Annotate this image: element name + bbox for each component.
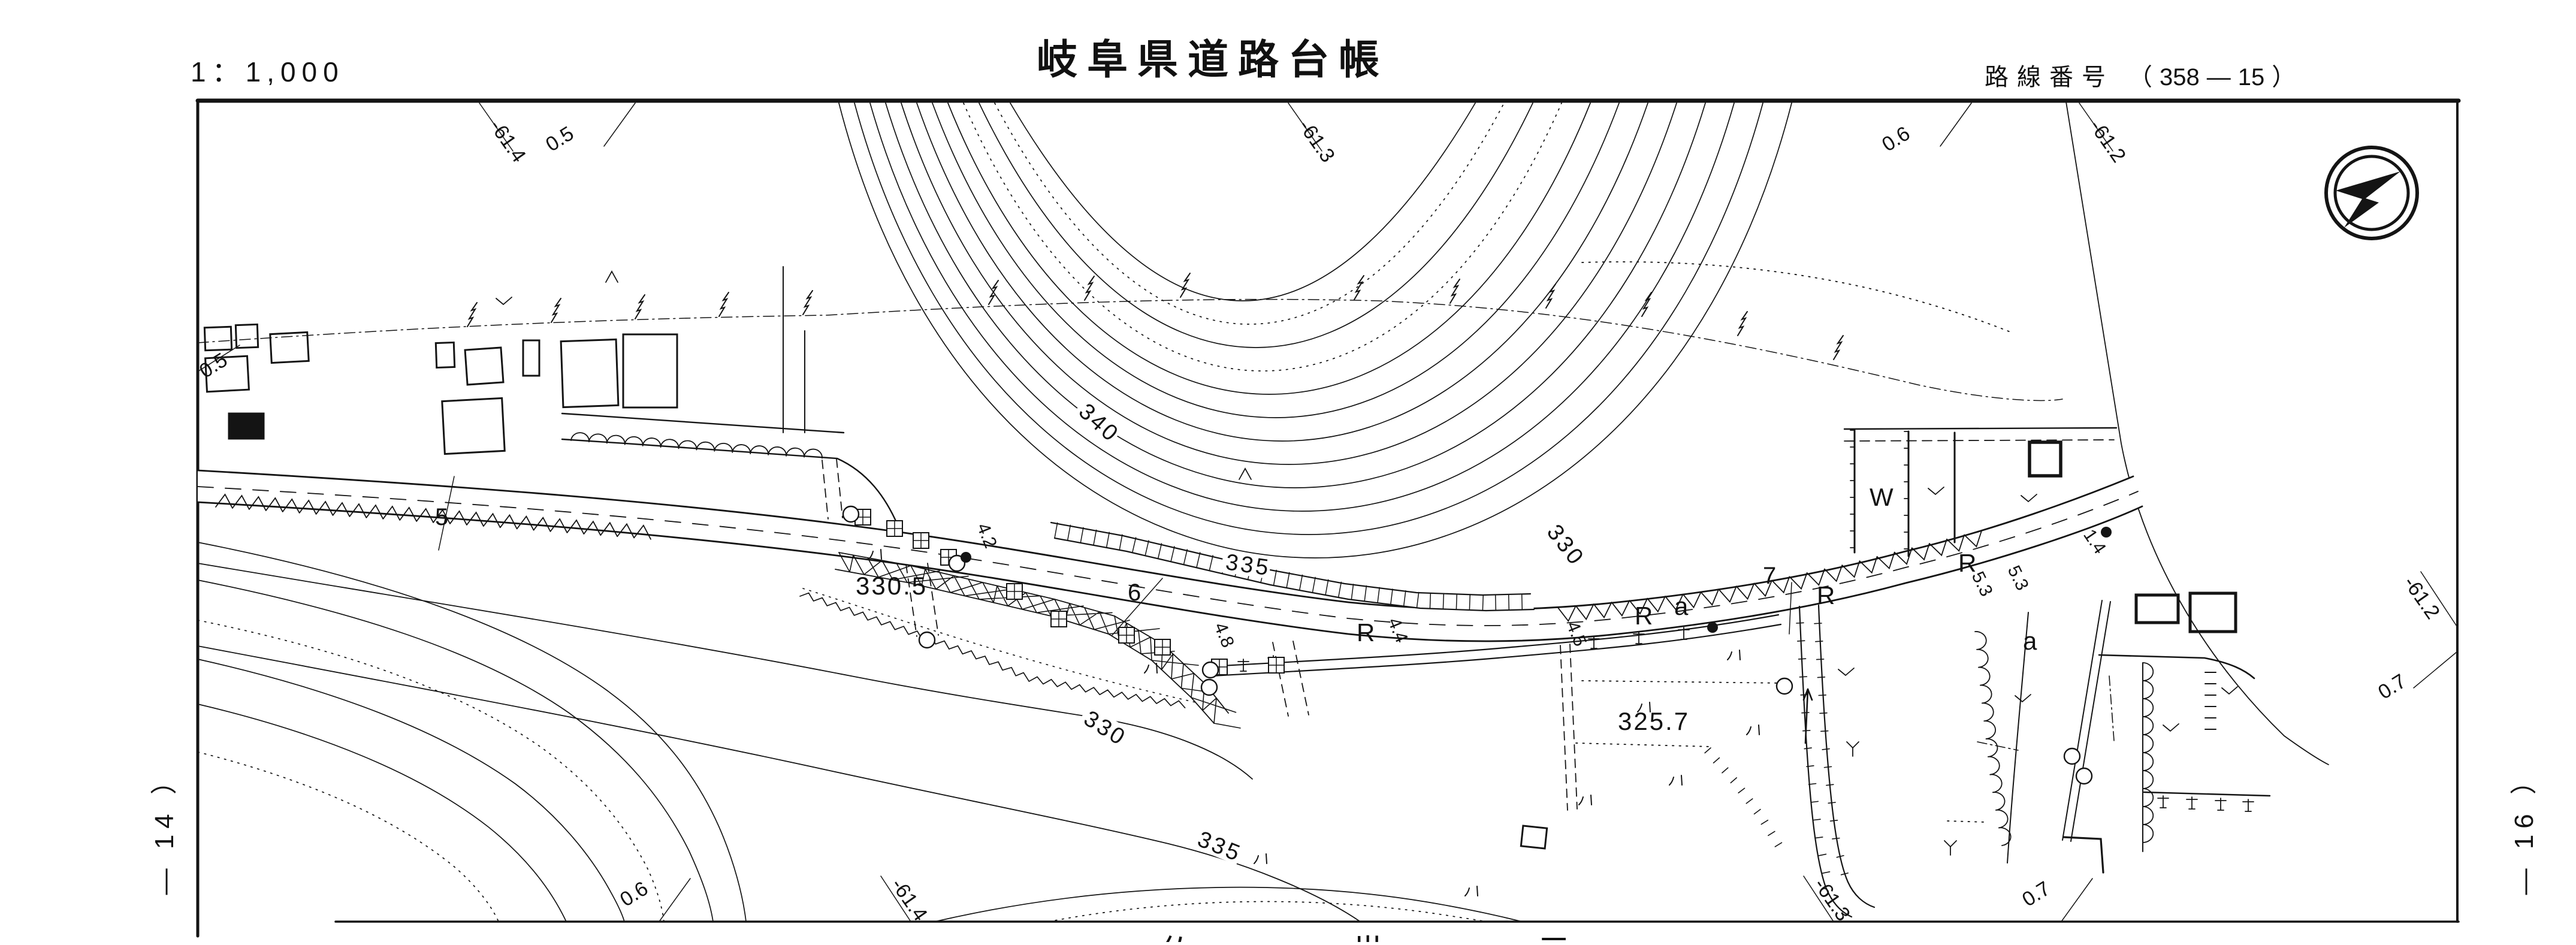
map-line bbox=[1820, 713, 1827, 714]
svg-text:a: a bbox=[2023, 627, 2037, 655]
grass-icon bbox=[1728, 650, 1740, 660]
map-line bbox=[964, 103, 1562, 371]
building bbox=[561, 339, 618, 407]
map-line bbox=[198, 646, 1360, 922]
map-line bbox=[1798, 641, 1805, 641]
grid-tick bbox=[659, 878, 690, 922]
map-line bbox=[198, 620, 664, 922]
map-line bbox=[1821, 731, 1828, 732]
map-line bbox=[1819, 605, 1874, 907]
svg-text:R: R bbox=[1635, 602, 1653, 630]
map-line bbox=[1802, 712, 1809, 713]
station-number-label: 5 bbox=[435, 504, 448, 530]
hedge-icon bbox=[1738, 312, 1747, 336]
map-line bbox=[901, 103, 1677, 464]
tree-a-icon bbox=[1239, 469, 1251, 479]
grid-coordinate-label: -61.4 bbox=[485, 116, 530, 167]
grid-tick bbox=[1940, 103, 1971, 146]
map-line bbox=[198, 580, 713, 922]
map-line bbox=[979, 103, 1533, 348]
map-line bbox=[198, 752, 499, 922]
map-line bbox=[1816, 837, 1823, 838]
clipped-caption-character: 世 bbox=[1351, 925, 1385, 942]
hedge-icon bbox=[467, 303, 477, 327]
svg-text:5.3: 5.3 bbox=[2004, 563, 2033, 594]
map-line bbox=[2215, 798, 2226, 810]
hedge-icon bbox=[1546, 284, 1556, 308]
grass-icon bbox=[1579, 795, 1591, 805]
svg-text:-61.3: -61.3 bbox=[1294, 116, 1339, 167]
map-line bbox=[1813, 819, 1820, 820]
map-line bbox=[800, 593, 1185, 708]
grass-icon bbox=[1669, 775, 1682, 785]
map-line bbox=[1825, 766, 1832, 767]
map-line bbox=[1761, 820, 1768, 825]
map-line bbox=[2062, 600, 2102, 840]
grass-icon bbox=[1465, 886, 1478, 896]
manhole-icon bbox=[2064, 748, 2080, 764]
scrub-icon bbox=[496, 297, 512, 304]
pole-dot-icon bbox=[961, 552, 971, 563]
building bbox=[2190, 593, 2236, 632]
scale-label: 1：1,000 bbox=[191, 50, 345, 90]
map-line bbox=[1796, 623, 1804, 623]
grid-coordinate-label: 0.7 bbox=[2018, 877, 2054, 911]
map-line bbox=[1828, 802, 1835, 803]
map-line bbox=[839, 103, 1792, 558]
map-line bbox=[2243, 799, 2254, 811]
route-paren-close: ） bbox=[2272, 64, 2296, 90]
svg-text:4.8: 4.8 bbox=[1210, 620, 1238, 650]
manhole-icon bbox=[2076, 768, 2092, 784]
svg-text:335: 335 bbox=[1194, 826, 1246, 866]
svg-text:330.5: 330.5 bbox=[856, 572, 928, 600]
contour-elevation-label: 335 bbox=[1191, 826, 1245, 867]
map-line bbox=[928, 563, 938, 635]
map-line bbox=[1633, 632, 1644, 644]
map-line bbox=[198, 542, 746, 922]
map-line bbox=[1582, 262, 2013, 333]
svg-text:W: W bbox=[1870, 483, 1894, 511]
map-line bbox=[1975, 632, 2011, 846]
left-sheet-number: — 14 ） bbox=[143, 762, 179, 942]
map-line bbox=[822, 460, 828, 519]
svg-text:6: 6 bbox=[1128, 579, 1141, 606]
grid-tick bbox=[2061, 878, 2092, 922]
clipped-caption-character: 元 bbox=[1537, 925, 1571, 942]
manhole-icon bbox=[1203, 662, 1218, 678]
svg-text:7: 7 bbox=[1763, 563, 1776, 589]
contour-elevation-label: 330 bbox=[1077, 704, 1131, 751]
route-paren-open: （ bbox=[2128, 64, 2152, 90]
map-line bbox=[1947, 821, 1987, 822]
map-line bbox=[1844, 440, 2114, 441]
map-line bbox=[1746, 799, 1752, 804]
hedge-icon bbox=[803, 291, 813, 315]
svg-text:-61.2: -61.2 bbox=[2399, 572, 2444, 623]
road-code-label: a bbox=[1674, 592, 1689, 620]
map-line bbox=[1589, 636, 1599, 648]
map-line bbox=[1293, 641, 1309, 715]
road-code-label: W bbox=[1870, 483, 1894, 511]
map-line bbox=[1819, 695, 1826, 696]
grid-tick bbox=[2414, 652, 2457, 688]
svg-text:0.7: 0.7 bbox=[2374, 670, 2410, 704]
road-code-label: R bbox=[1635, 602, 1653, 630]
map-line bbox=[948, 103, 1590, 394]
map-line bbox=[1817, 677, 1825, 678]
svg-text:0.6: 0.6 bbox=[616, 877, 652, 911]
building bbox=[229, 413, 264, 439]
contour-elevation-label: 340 bbox=[1073, 397, 1124, 448]
grid-coordinate-label: -61.2 bbox=[2399, 572, 2444, 623]
map-line bbox=[1823, 872, 1830, 873]
svg-text:R: R bbox=[1357, 618, 1375, 647]
building bbox=[465, 348, 503, 385]
bottom-clipped-caption: 仏世元 bbox=[0, 925, 2576, 942]
grass-icon bbox=[1144, 663, 1157, 673]
dimension-label: 5.3 bbox=[2004, 563, 2033, 594]
svg-text:-61.4: -61.4 bbox=[886, 874, 932, 925]
svg-text:0.5: 0.5 bbox=[542, 122, 578, 156]
grid-coordinate-label: -61.4 bbox=[886, 874, 932, 925]
building bbox=[436, 342, 454, 367]
road-code-label: R bbox=[1817, 581, 1835, 609]
scrub-icon bbox=[1928, 487, 1944, 494]
map-line bbox=[1560, 645, 1568, 810]
scrub-icon bbox=[1838, 668, 1854, 675]
map-line bbox=[1822, 749, 1829, 750]
pole-dot-icon bbox=[1707, 622, 1718, 633]
map-line bbox=[1775, 843, 1781, 847]
map-line bbox=[198, 659, 624, 922]
manhole-icon bbox=[1201, 680, 1217, 695]
hedge-icon bbox=[635, 295, 645, 319]
map-line bbox=[1714, 758, 1720, 763]
scrub-icon bbox=[2021, 494, 2037, 502]
map-line bbox=[2109, 676, 2114, 741]
map-line bbox=[1576, 743, 1711, 747]
map-line bbox=[1731, 778, 1737, 783]
grid-coordinate-label: -61.2 bbox=[2085, 116, 2130, 167]
map-line bbox=[1738, 788, 1744, 793]
map-line bbox=[1826, 784, 1834, 785]
tree-y-icon bbox=[1847, 742, 1859, 756]
map-line bbox=[836, 459, 842, 518]
map-line bbox=[2187, 797, 2197, 809]
dimension-label: 4.8 bbox=[1210, 620, 1238, 650]
map-line bbox=[2071, 602, 2110, 841]
route-branch: 15 bbox=[2238, 64, 2265, 90]
svg-text:a: a bbox=[1674, 592, 1689, 620]
map-line bbox=[1722, 768, 1728, 773]
building bbox=[2030, 442, 2061, 476]
map-line bbox=[2064, 837, 2103, 872]
tree-a-icon bbox=[606, 271, 618, 282]
map-line bbox=[1799, 677, 1807, 677]
map-line bbox=[2143, 663, 2153, 843]
building bbox=[204, 327, 231, 351]
map-line bbox=[1819, 854, 1826, 855]
map-line bbox=[1811, 801, 1818, 802]
map-canvas: -61.40.5-61.30.6-61.20.6-61.4-61.30.70.5… bbox=[0, 0, 2576, 942]
map-line bbox=[1832, 838, 1840, 839]
scrub-icon bbox=[2015, 695, 2031, 702]
contour-elevation-label: 335 bbox=[1221, 550, 1272, 581]
map-line bbox=[1831, 820, 1838, 821]
route-dash: — bbox=[2207, 64, 2231, 90]
map-line bbox=[1754, 810, 1760, 814]
svg-text:R: R bbox=[1817, 581, 1835, 609]
map-line bbox=[198, 704, 566, 922]
grass-icon bbox=[1747, 725, 1759, 735]
map-line bbox=[1804, 748, 1811, 748]
grid-coordinate-label: 0.6 bbox=[616, 877, 652, 911]
route-label: 路線番号 bbox=[1985, 64, 2114, 90]
hedge-icon bbox=[1450, 279, 1460, 303]
map-line bbox=[1049, 902, 1486, 922]
map-line bbox=[1582, 681, 1786, 683]
grid-coordinate-label: 0.5 bbox=[542, 122, 578, 156]
grid-tick bbox=[604, 103, 635, 146]
building bbox=[1521, 826, 1547, 849]
grid-coordinate-label: -61.3 bbox=[1294, 116, 1339, 167]
map-line bbox=[1799, 659, 1806, 659]
building bbox=[442, 398, 505, 454]
building bbox=[235, 324, 258, 348]
station-number-label: 6 bbox=[1128, 579, 1141, 606]
hedge-icon bbox=[1354, 276, 1364, 300]
hedge-icon bbox=[551, 298, 561, 322]
map-line bbox=[2144, 792, 2270, 796]
manhole-icon bbox=[1777, 678, 1792, 694]
road-code-label: R bbox=[1958, 549, 1976, 577]
map-sheet: 1：1,000 岐阜県道路台帳 路線番号（358—15） — 14 ） — 16… bbox=[0, 0, 2576, 942]
map-line bbox=[1817, 659, 1824, 660]
svg-text:-61.4: -61.4 bbox=[485, 116, 530, 167]
grid-coordinate-label: 0.6 bbox=[1878, 122, 1914, 156]
grass-icon bbox=[1254, 854, 1267, 864]
svg-text:5: 5 bbox=[435, 504, 448, 530]
clipped-caption-character: 仏 bbox=[1159, 925, 1193, 942]
right-sheet-number: — 16 ） bbox=[2502, 762, 2538, 942]
map-line bbox=[1768, 831, 1775, 835]
map-line bbox=[2099, 655, 2254, 678]
map-line bbox=[2066, 102, 2329, 765]
route-number: 358 bbox=[2160, 64, 2200, 90]
page-title: 岐阜県道路台帳 bbox=[1037, 26, 1389, 86]
contour-elevation-label: 330 bbox=[1541, 517, 1590, 571]
svg-text:325.7: 325.7 bbox=[1618, 707, 1690, 735]
spot-elevation-label: 330.5 bbox=[856, 572, 928, 600]
building bbox=[623, 334, 677, 407]
hedge-icon bbox=[989, 280, 998, 304]
map-line bbox=[935, 887, 1522, 922]
grid-coordinate-label: 0.7 bbox=[2374, 670, 2410, 704]
station-number-label: 7 bbox=[1763, 563, 1776, 589]
spot-elevation-label: 325.7 bbox=[1618, 707, 1690, 735]
svg-text:R: R bbox=[1958, 549, 1976, 577]
manhole-icon bbox=[919, 632, 935, 648]
road-code-label: a bbox=[2023, 627, 2037, 655]
svg-text:-61.2: -61.2 bbox=[2085, 116, 2130, 167]
route-number-box: 路線番号（358—15） bbox=[1981, 58, 2299, 92]
svg-text:0.7: 0.7 bbox=[2018, 877, 2054, 911]
tree-y-icon bbox=[1944, 841, 1956, 855]
map-line bbox=[1844, 428, 2116, 429]
map-line bbox=[2158, 796, 2169, 808]
hedge-icon bbox=[1180, 273, 1190, 297]
hedge-icon bbox=[1834, 336, 1843, 360]
svg-text:0.6: 0.6 bbox=[1878, 122, 1914, 156]
building bbox=[523, 340, 539, 376]
map-line bbox=[917, 103, 1648, 441]
map-line bbox=[1705, 748, 1711, 753]
map-line bbox=[1814, 623, 1822, 624]
scrub-icon bbox=[2222, 687, 2237, 694]
road-code-label: R bbox=[1357, 618, 1375, 647]
map-line bbox=[870, 103, 1734, 511]
hedge-icon bbox=[719, 292, 729, 316]
map-line bbox=[1816, 641, 1823, 642]
map-line bbox=[1570, 644, 1577, 809]
building bbox=[2136, 595, 2178, 623]
map-line bbox=[1273, 642, 1288, 716]
map-line bbox=[995, 103, 1504, 324]
map-line bbox=[1010, 103, 1475, 301]
manhole-icon bbox=[843, 506, 859, 522]
scrub-icon bbox=[2163, 724, 2179, 731]
